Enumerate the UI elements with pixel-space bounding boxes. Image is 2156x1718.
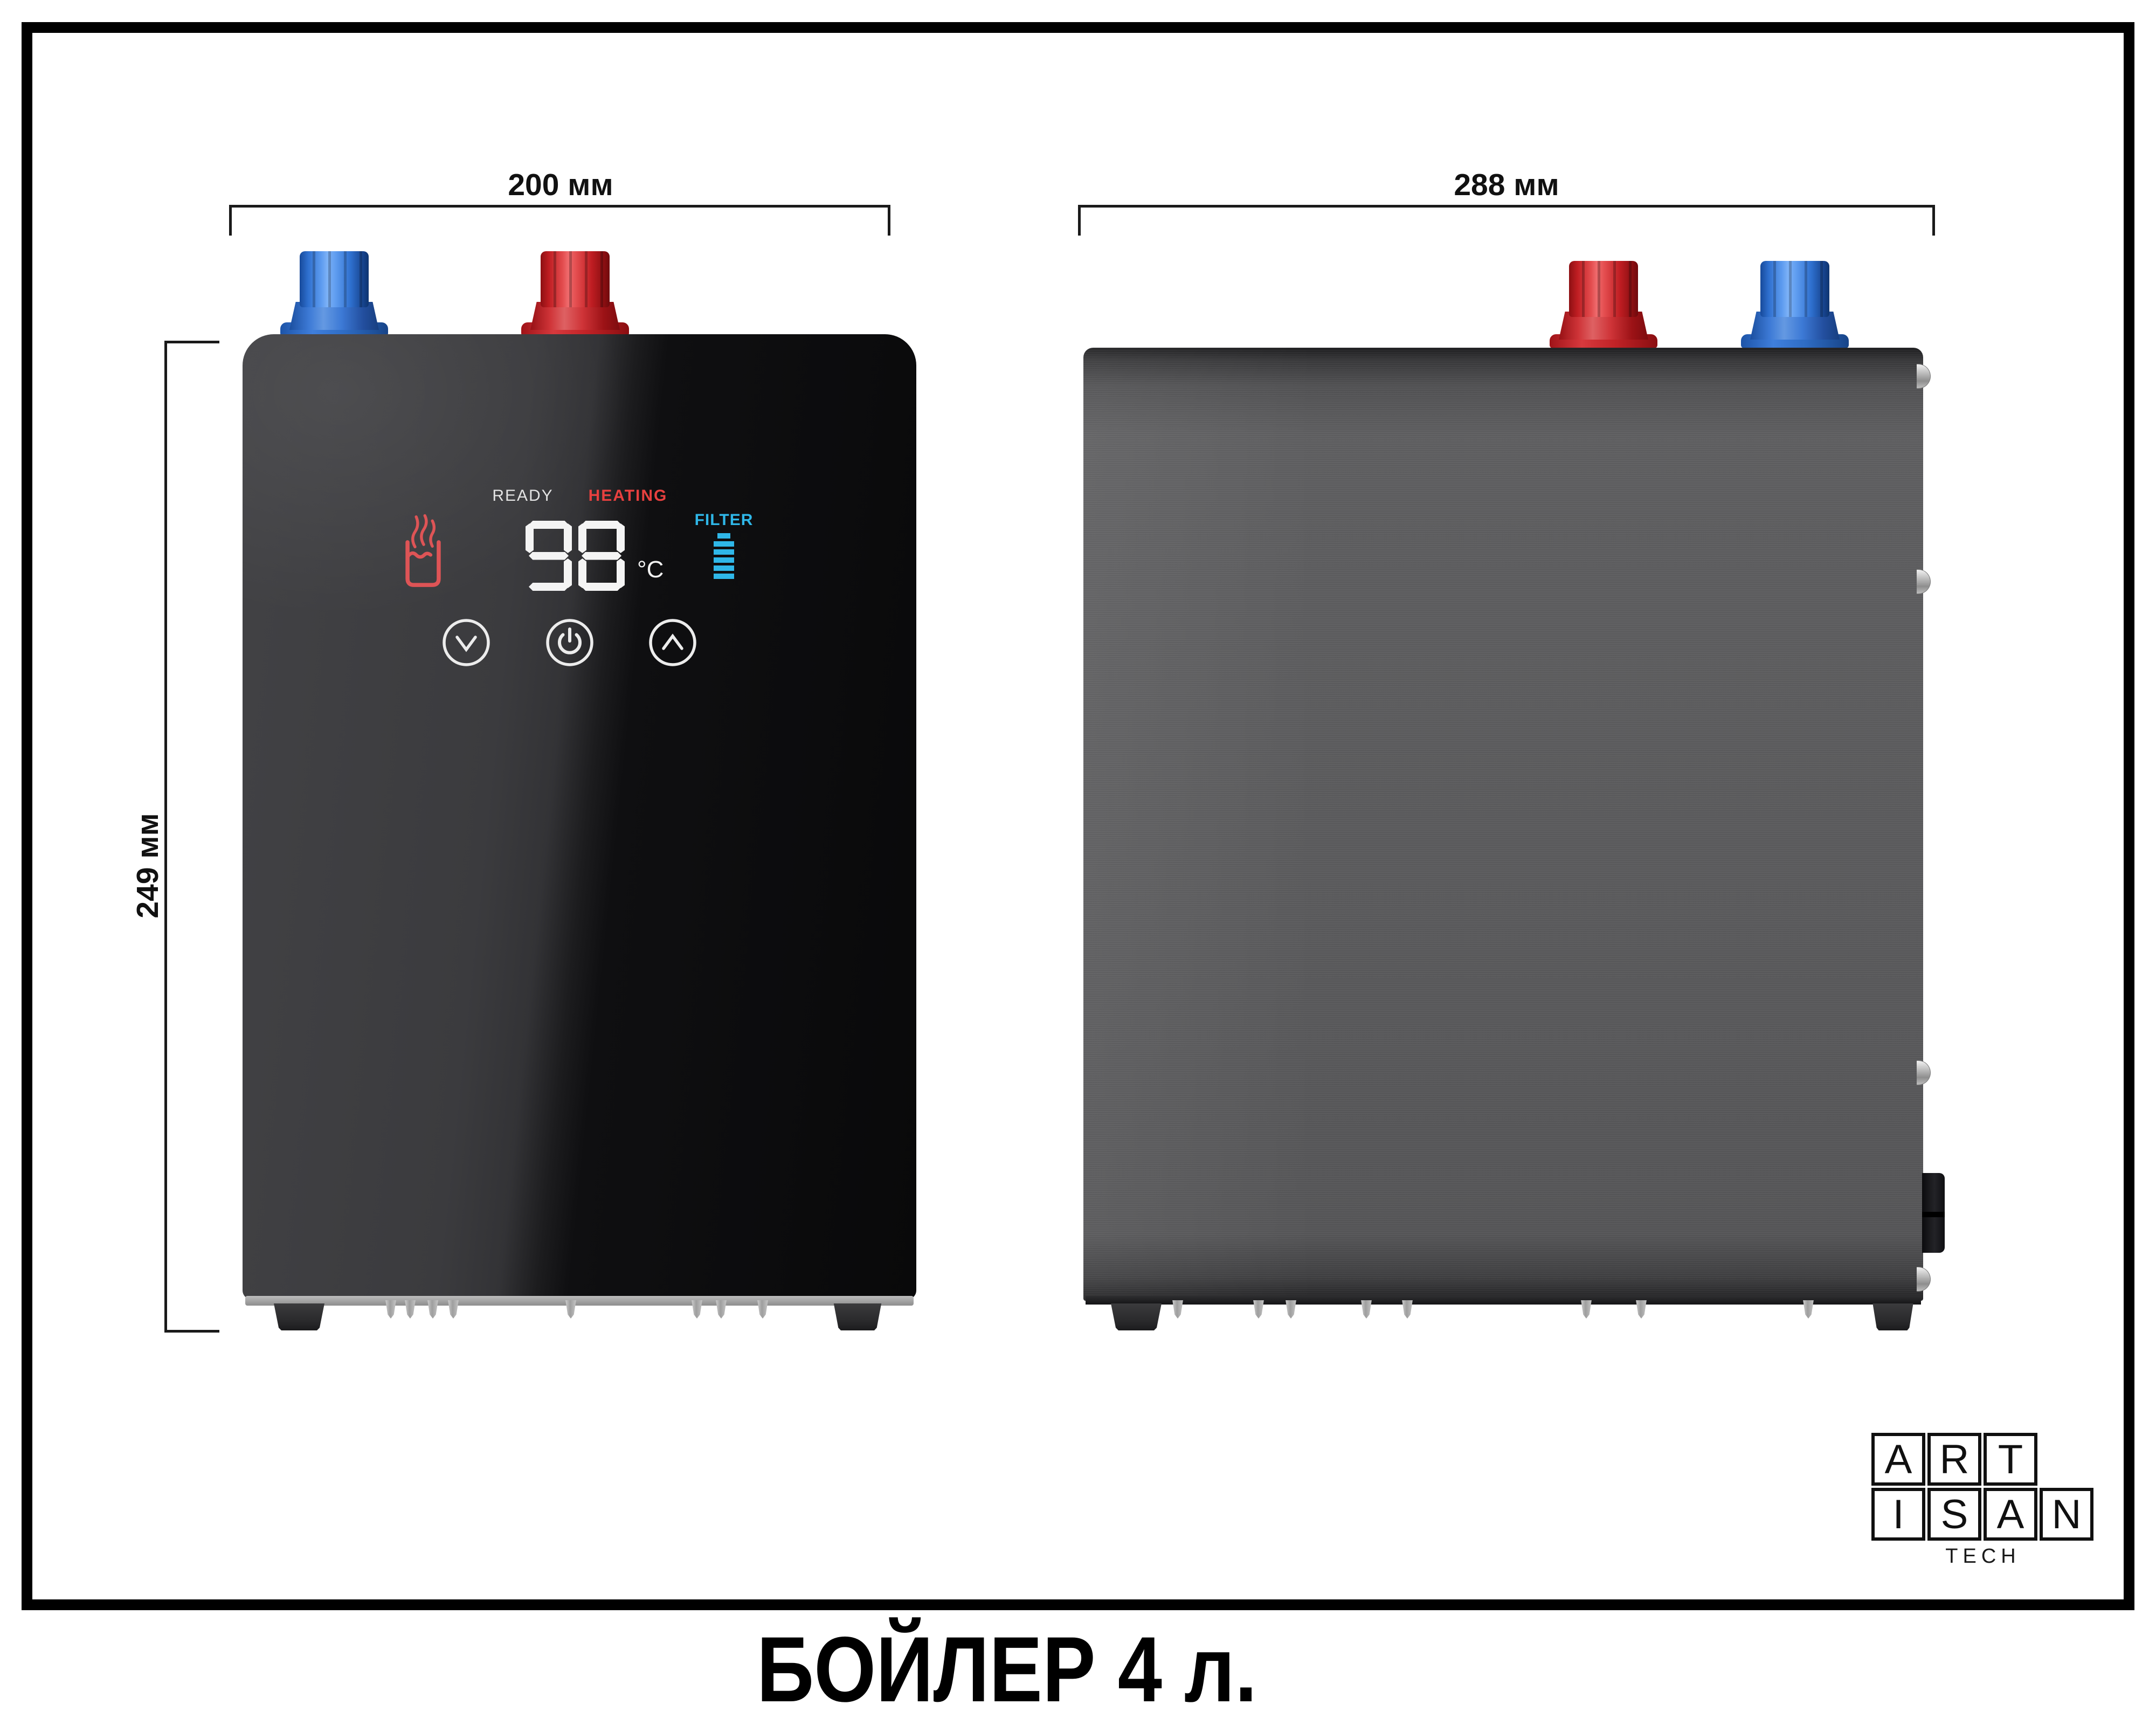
temperature-readout xyxy=(526,521,631,591)
boiler-side-panel xyxy=(1083,348,1923,1301)
filter-bar xyxy=(714,541,734,547)
hot-cup-icon xyxy=(400,511,446,592)
filter-bar xyxy=(714,565,734,571)
logo-letter-box: A xyxy=(1984,1488,2037,1541)
side-base-strip xyxy=(1086,1296,1921,1305)
front-height-dimension-label: 249 мм xyxy=(130,785,162,947)
logo-tagline: TECH xyxy=(1871,1545,2095,1568)
logo-letter-box: I xyxy=(1871,1488,1925,1541)
product-title: БОЙЛЕР 4 л. xyxy=(729,1616,1285,1718)
filter-bar xyxy=(717,533,730,539)
front-width-dimension-tick-left xyxy=(229,205,232,236)
hot-outlet-cylinder-side xyxy=(1569,261,1638,317)
front-base-strip xyxy=(245,1296,914,1306)
power-button xyxy=(543,616,597,670)
logo-row-bottom: ISAN xyxy=(1871,1488,2093,1541)
cold-inlet-cylinder xyxy=(300,251,369,307)
filter-bar xyxy=(714,549,734,555)
connector-notch xyxy=(1922,1212,1945,1217)
product-spec-sheet: 200 мм 249 мм 288 мм READY HEATING FILTE… xyxy=(0,0,2156,1718)
logo-letter-box: A xyxy=(1871,1433,1925,1486)
side-width-dimension-label: 288 мм xyxy=(1426,167,1587,203)
temperature-unit: °C xyxy=(637,556,664,583)
front-height-dimension-line xyxy=(164,341,167,1333)
logo-letter-box: R xyxy=(1927,1433,1981,1486)
side-width-dimension-tick-right xyxy=(1932,205,1935,236)
side-width-dimension-tick-left xyxy=(1078,205,1081,236)
front-height-dimension-tick-top xyxy=(164,341,219,343)
logo-letter-box: S xyxy=(1927,1488,1981,1541)
temp-down-button xyxy=(439,616,493,670)
front-right-foot xyxy=(832,1303,883,1330)
cold-inlet-cylinder-side xyxy=(1760,261,1829,317)
boiler-front-panel xyxy=(243,334,916,1299)
power-connector-block xyxy=(1922,1173,1945,1253)
front-height-dimension-tick-bottom xyxy=(164,1330,219,1333)
filter-level-indicator xyxy=(713,533,735,579)
filter-bar xyxy=(714,557,734,563)
logo-row-top: ART xyxy=(1871,1433,2037,1486)
front-width-dimension-line xyxy=(229,205,890,208)
hot-outlet-cylinder xyxy=(541,251,610,307)
heating-status-label: HEATING xyxy=(579,487,676,505)
side-width-dimension-line xyxy=(1078,205,1935,208)
side-left-foot xyxy=(1109,1303,1163,1330)
front-width-dimension-tick-right xyxy=(888,205,890,236)
logo-letter-box: N xyxy=(2040,1488,2093,1541)
front-left-foot xyxy=(272,1303,326,1330)
logo-letter-box: T xyxy=(1984,1433,2037,1486)
filter-bar xyxy=(714,574,734,579)
front-width-dimension-label: 200 мм xyxy=(480,167,641,203)
temp-up-button xyxy=(646,616,700,670)
filter-label: FILTER xyxy=(694,511,754,529)
ready-status-label: READY xyxy=(480,487,566,505)
side-right-foot xyxy=(1871,1303,1915,1330)
